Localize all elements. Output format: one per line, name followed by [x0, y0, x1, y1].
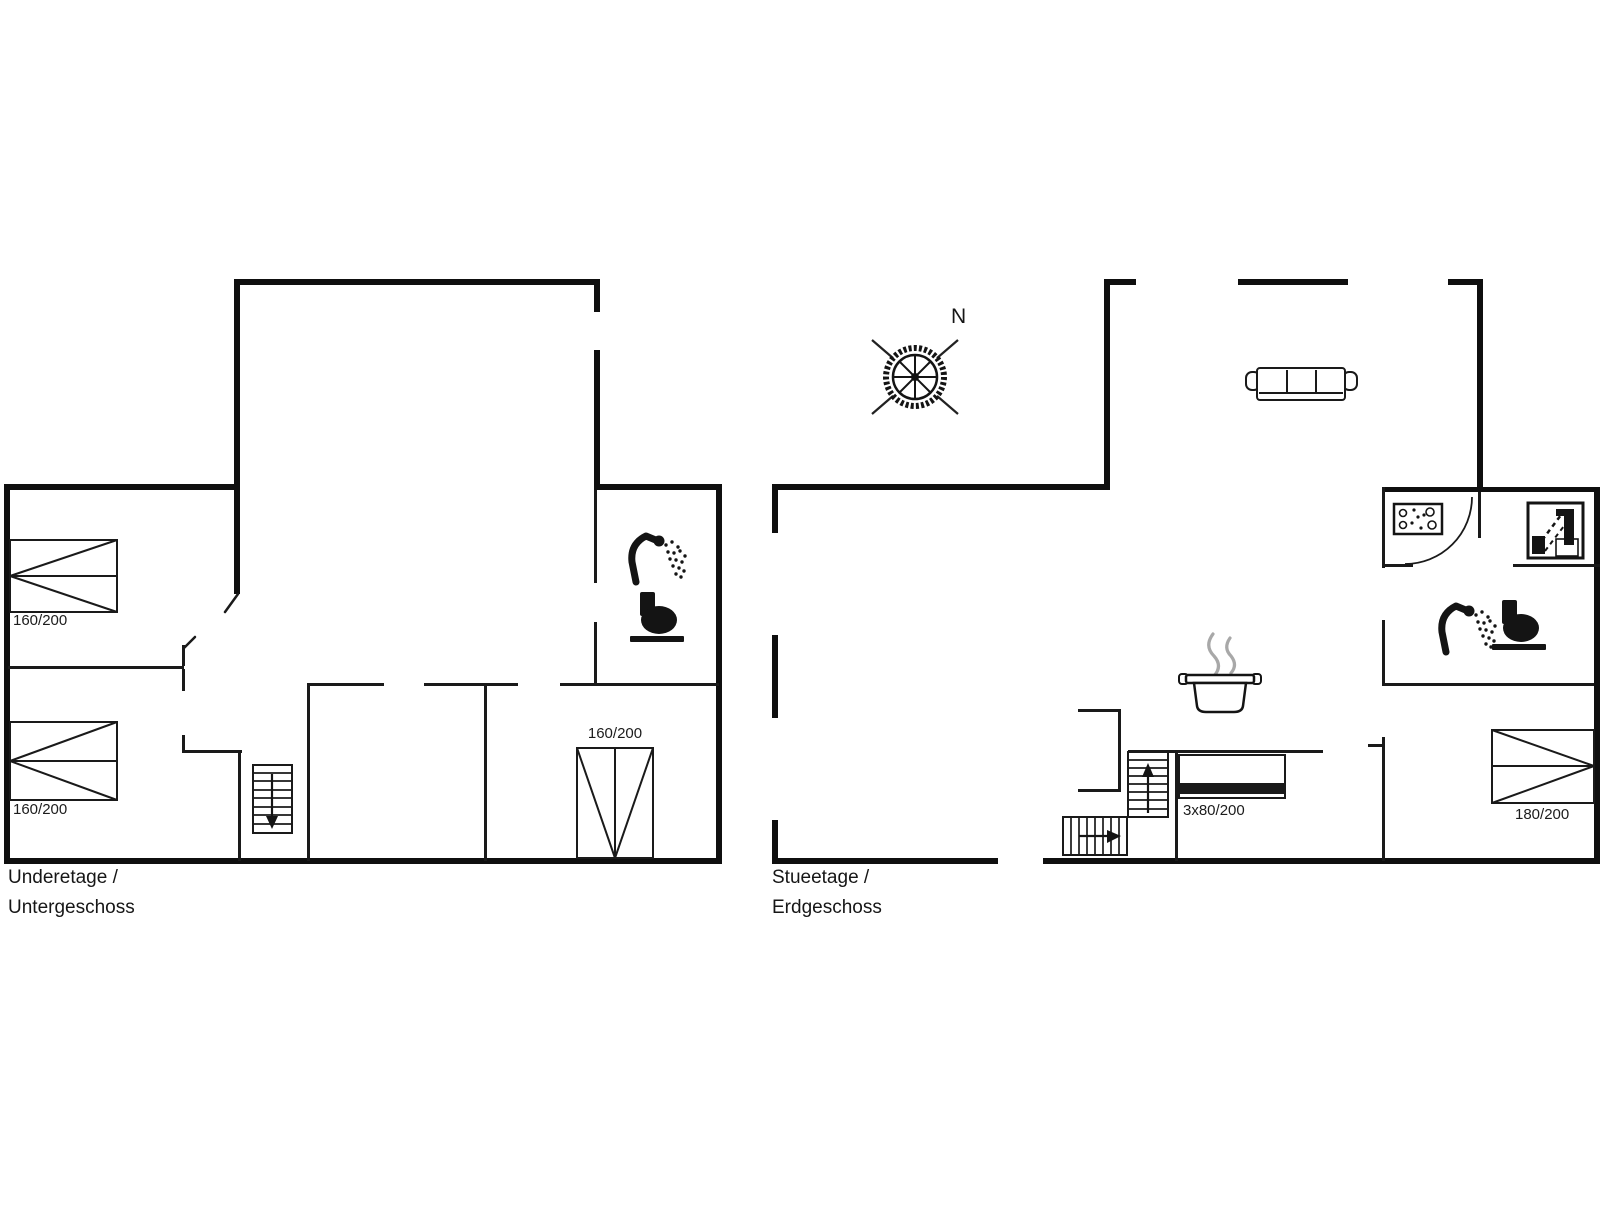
shower-icon — [1442, 606, 1497, 653]
double-bed-3 — [577, 748, 653, 858]
ground-floor-title-line1: Stueetage / — [772, 867, 869, 889]
floorplan-drawing — [0, 0, 1606, 1205]
ground-floor-title-line2: Erdgeschoss — [772, 897, 882, 919]
stove-pot-icon — [1179, 634, 1261, 712]
door-leaf-icons — [184, 594, 238, 648]
bunk-bed-icon — [1179, 755, 1285, 798]
double-bed-2 — [10, 722, 117, 800]
bed-size-label: 3x80/200 — [1183, 802, 1245, 820]
toilet-icon — [630, 592, 684, 642]
double-bed-1 — [10, 540, 117, 612]
shower-icon — [632, 536, 687, 583]
lower-floor-title-line1: Underetage / — [8, 867, 118, 889]
bed-size-label: 160/200 — [13, 612, 67, 630]
compass-rose-icon — [872, 340, 958, 414]
washing-machine-icon — [1394, 504, 1442, 534]
stairs-entry-icon — [1063, 817, 1127, 855]
bed-size-label: 160/200 — [577, 725, 653, 743]
ground-floor-plan — [772, 279, 1600, 864]
sofa-icon — [1246, 368, 1357, 400]
bed-size-label: 180/200 — [1515, 806, 1569, 824]
stairs-up-icon — [1128, 752, 1168, 817]
floorplan-page: 160/200 160/200 160/200 3x80/200 180/200… — [0, 0, 1606, 1205]
lower-floor-plan — [4, 279, 722, 864]
sink-icon — [1528, 503, 1583, 558]
toilet-icon — [1492, 600, 1546, 650]
stairs-down-icon — [253, 765, 292, 833]
bed-size-label: 160/200 — [13, 801, 67, 819]
double-bed-4 — [1492, 730, 1594, 803]
lower-floor-title-line2: Untergeschoss — [8, 897, 135, 919]
compass-north-label: N — [951, 308, 966, 326]
